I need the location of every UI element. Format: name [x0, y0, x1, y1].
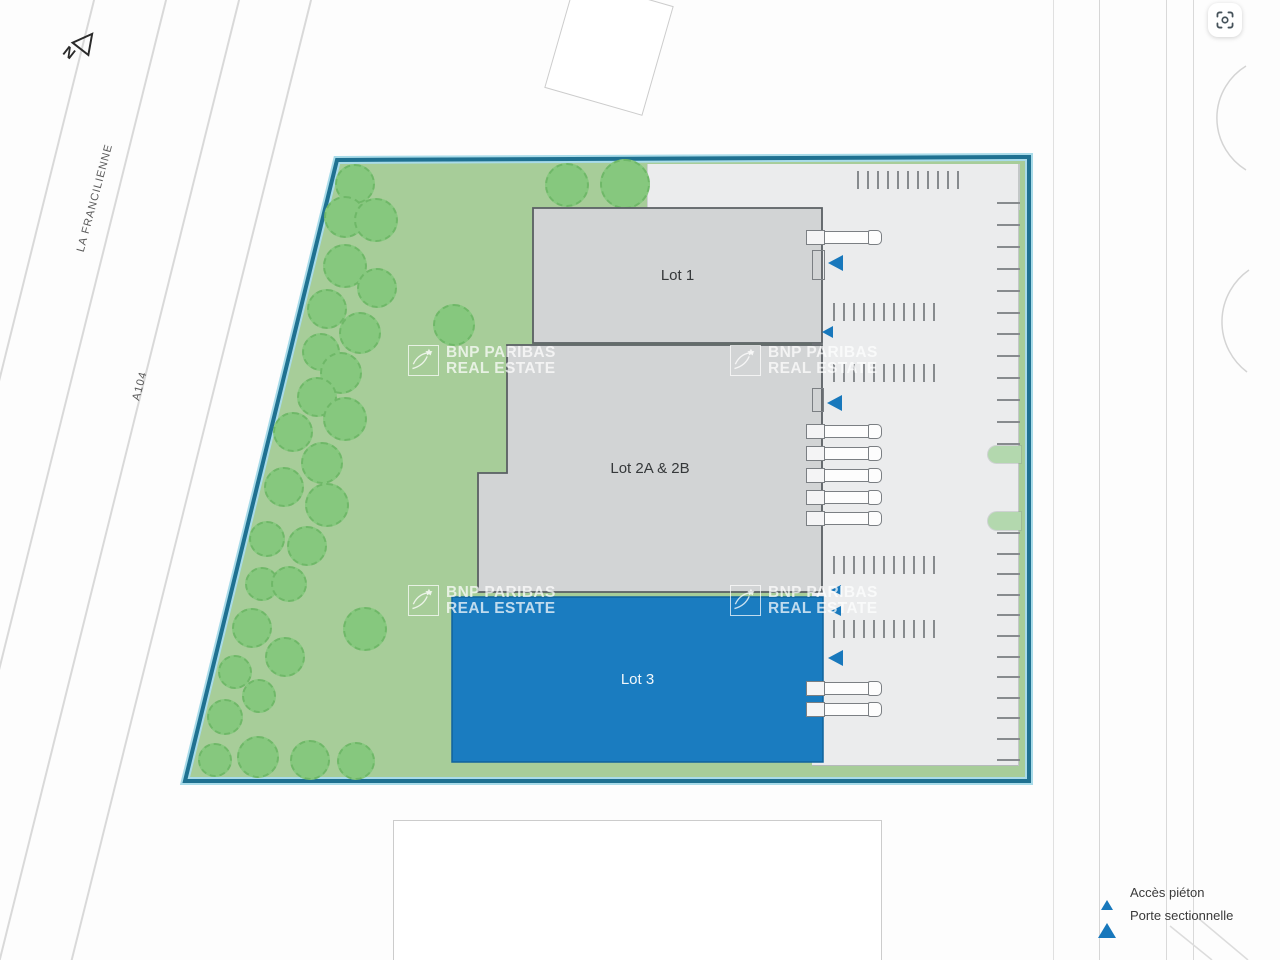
- porte-sectionnelle-marker: [828, 255, 843, 271]
- lot-1-label: Lot 1: [661, 267, 694, 284]
- truck-trailer: [824, 491, 869, 504]
- legend-label-porte-sectionnelle: Porte sectionnelle: [1130, 908, 1233, 923]
- triangle-up-small-icon: [1098, 883, 1120, 901]
- truck-cab: [868, 468, 882, 483]
- legend-label-acces-pieton: Accès piéton: [1130, 885, 1204, 900]
- acces-pieton-marker: [831, 585, 841, 595]
- acces-pieton-marker: [822, 326, 833, 338]
- building-lot-2a-2b[interactable]: Lot 2A & 2B: [478, 345, 822, 592]
- lot-2-label: Lot 2A & 2B: [610, 460, 689, 477]
- truck-cab: [868, 490, 882, 505]
- truck-trailer: [824, 469, 869, 482]
- truck-cab: [868, 681, 882, 696]
- truck-cab: [868, 511, 882, 526]
- porte-sectionnelle-marker: [828, 650, 843, 666]
- legend-item-acces-pieton: Accès piéton: [1098, 883, 1233, 901]
- acces-pieton-marker: [831, 606, 841, 616]
- site-plan-canvas: BNP PARIBASREAL ESTATEBNP PARIBASREAL ES…: [0, 0, 1280, 960]
- truck-cab: [868, 424, 882, 439]
- legend: Accès piéton Porte sectionnelle: [1098, 883, 1233, 929]
- truck-cab: [868, 702, 882, 717]
- scan-frame-icon: [1214, 9, 1236, 31]
- truck-trailer: [824, 425, 869, 438]
- building-lot-1[interactable]: Lot 1: [533, 208, 822, 343]
- truck-cab: [868, 230, 882, 245]
- lot-3-label: Lot 3: [621, 671, 654, 688]
- truck-trailer: [824, 682, 869, 695]
- building-lot-3[interactable]: Lot 3: [452, 597, 823, 762]
- truck-cab: [868, 446, 882, 461]
- porte-sectionnelle-marker: [827, 395, 842, 411]
- truck-trailer: [824, 231, 869, 244]
- truck-trailer: [824, 447, 869, 460]
- truck-trailer: [824, 512, 869, 525]
- triangle-up-large-icon: [1098, 906, 1120, 924]
- legend-item-porte-sectionnelle: Porte sectionnelle: [1098, 906, 1233, 924]
- truck-trailer: [824, 703, 869, 716]
- scan-view-button[interactable]: [1208, 3, 1242, 37]
